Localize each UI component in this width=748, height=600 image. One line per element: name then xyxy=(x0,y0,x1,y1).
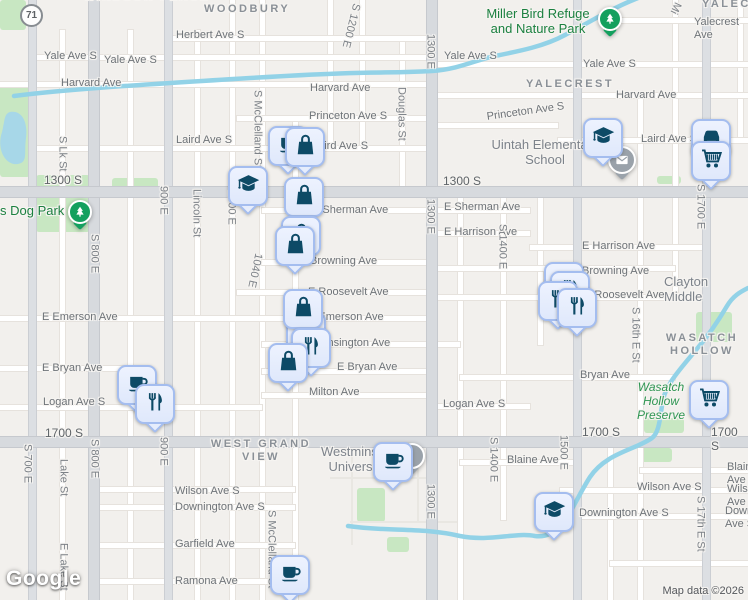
highway-71-shield-icon: 71 xyxy=(20,4,43,27)
google-logo[interactable]: Google xyxy=(6,567,81,591)
overlay-layer: 71 Google Map data ©2026 xyxy=(0,0,748,600)
map-canvas[interactable]: WINDSOR PLACEWOODBURYYALECRESTYALECRESTW… xyxy=(0,0,748,600)
map-attribution: Map data ©2026 xyxy=(663,585,745,597)
